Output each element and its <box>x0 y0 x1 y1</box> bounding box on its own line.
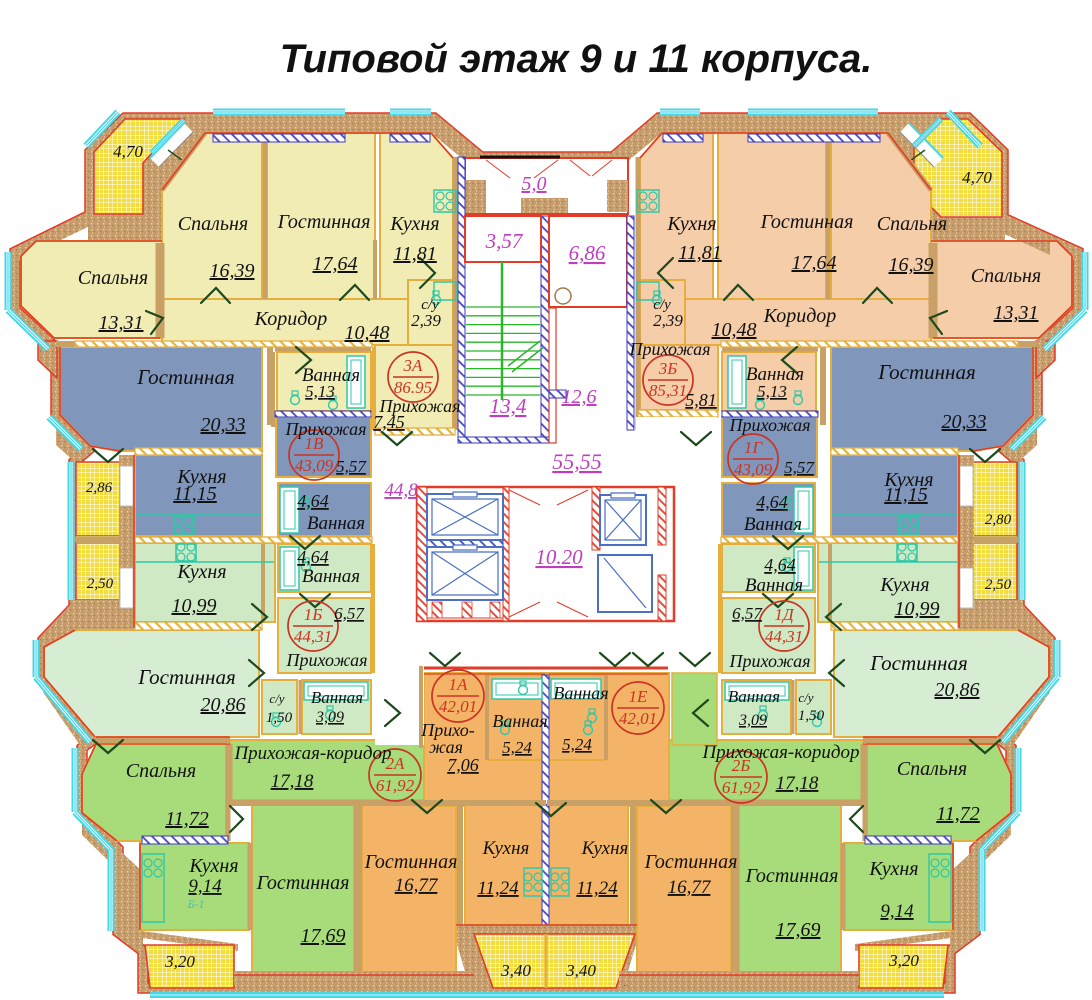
svg-text:Прихожая: Прихожая <box>729 415 811 435</box>
svg-text:3,57: 3,57 <box>485 229 524 253</box>
svg-text:17,64: 17,64 <box>792 252 837 274</box>
svg-text:6,57: 6,57 <box>334 604 365 623</box>
svg-text:Кухня: Кухня <box>176 561 226 583</box>
svg-text:44,31: 44,31 <box>765 627 803 646</box>
svg-text:11,15: 11,15 <box>884 484 928 506</box>
svg-text:с/у: с/у <box>269 691 284 706</box>
svg-text:6,57: 6,57 <box>732 604 763 623</box>
svg-text:20,33: 20,33 <box>942 411 987 433</box>
svg-text:1Д: 1Д <box>774 605 795 624</box>
svg-text:10,48: 10,48 <box>712 319 757 341</box>
svg-text:Гостинная: Гостинная <box>256 872 350 894</box>
svg-text:2,50: 2,50 <box>87 576 114 592</box>
svg-text:6,86: 6,86 <box>569 241 606 265</box>
svg-text:5,81: 5,81 <box>685 390 717 410</box>
svg-text:Кухня: Кухня <box>879 574 929 596</box>
svg-text:2,50: 2,50 <box>985 577 1012 593</box>
svg-text:Ванная: Ванная <box>492 711 547 731</box>
svg-text:42,01: 42,01 <box>439 697 477 716</box>
svg-text:10.20: 10.20 <box>535 545 583 569</box>
svg-text:Кухня: Кухня <box>581 838 629 859</box>
svg-text:1Б: 1Б <box>304 605 323 624</box>
svg-text:20,86: 20,86 <box>935 679 980 701</box>
svg-text:4,64: 4,64 <box>297 491 329 511</box>
svg-text:11,72: 11,72 <box>936 803 980 825</box>
svg-text:Ванная: Ванная <box>744 514 802 535</box>
svg-text:Кухня: Кухня <box>666 213 716 235</box>
svg-text:Ванная: Ванная <box>553 683 608 703</box>
svg-text:10,99: 10,99 <box>895 598 940 620</box>
svg-text:с/у: с/у <box>798 690 813 705</box>
svg-text:86.95: 86.95 <box>394 378 432 397</box>
svg-text:Гостинная: Гостинная <box>869 651 967 675</box>
svg-text:Спальня: Спальня <box>897 758 967 780</box>
svg-text:13,4: 13,4 <box>490 394 527 418</box>
svg-text:4,64: 4,64 <box>297 547 329 567</box>
svg-text:5,0: 5,0 <box>522 173 547 195</box>
svg-text:Кухня: Кухня <box>482 838 530 859</box>
svg-text:Прихожая: Прихожая <box>629 339 711 359</box>
svg-text:Ванная: Ванная <box>302 566 360 587</box>
svg-text:1,50: 1,50 <box>798 708 825 724</box>
svg-text:11,72: 11,72 <box>165 808 209 830</box>
svg-text:11,81: 11,81 <box>678 242 722 264</box>
svg-text:Гостинная: Гостинная <box>364 851 458 873</box>
svg-text:Ванная: Ванная <box>311 688 363 707</box>
svg-text:2,86: 2,86 <box>86 480 113 496</box>
svg-text:Спальня: Спальня <box>78 267 148 289</box>
svg-text:Гостинная: Гостинная <box>277 211 371 233</box>
svg-text:10,99: 10,99 <box>172 595 217 617</box>
svg-text:2,80: 2,80 <box>985 512 1012 528</box>
svg-text:5,13: 5,13 <box>757 382 787 401</box>
svg-text:16,77: 16,77 <box>668 877 712 898</box>
svg-text:Кухня: Кухня <box>389 213 439 235</box>
svg-text:3,40: 3,40 <box>500 961 531 980</box>
svg-text:4,70: 4,70 <box>962 168 992 187</box>
svg-text:Спальня: Спальня <box>971 265 1041 287</box>
svg-text:43,09: 43,09 <box>734 460 773 479</box>
svg-text:Спальня: Спальня <box>126 760 196 782</box>
svg-text:17,18: 17,18 <box>271 771 314 792</box>
svg-text:17,69: 17,69 <box>776 919 821 941</box>
svg-text:Спальня: Спальня <box>877 213 947 235</box>
svg-text:5,57: 5,57 <box>336 457 367 476</box>
svg-text:44,31: 44,31 <box>294 627 332 646</box>
svg-text:Кухня: Кухня <box>868 858 918 880</box>
svg-text:2,39: 2,39 <box>411 311 441 330</box>
svg-text:5,13: 5,13 <box>305 382 335 401</box>
svg-text:5,24: 5,24 <box>502 738 532 757</box>
svg-text:7,45: 7,45 <box>373 412 405 432</box>
svg-text:Гостинная: Гостинная <box>137 665 235 689</box>
svg-text:Типовой этаж 9 и 11 корпуса.: Типовой этаж 9 и 11 корпуса. <box>280 37 873 81</box>
svg-text:11,81: 11,81 <box>393 243 437 265</box>
svg-text:17,18: 17,18 <box>776 773 819 794</box>
svg-text:9,14: 9,14 <box>880 901 914 922</box>
svg-text:3,09: 3,09 <box>738 712 767 729</box>
svg-text:3,20: 3,20 <box>888 951 919 970</box>
svg-text:17,64: 17,64 <box>313 253 358 275</box>
svg-text:4,70: 4,70 <box>113 142 143 161</box>
svg-text:12,6: 12,6 <box>562 386 597 408</box>
svg-text:3,40: 3,40 <box>565 961 596 980</box>
svg-text:Ванная: Ванная <box>307 513 365 534</box>
svg-text:5,57: 5,57 <box>784 458 815 477</box>
svg-text:3,20: 3,20 <box>164 952 195 971</box>
svg-text:11,24: 11,24 <box>477 878 519 899</box>
svg-text:Гостинная: Гостинная <box>136 365 234 389</box>
svg-text:Прихожая-коридор: Прихожая-коридор <box>233 743 391 764</box>
svg-text:11,15: 11,15 <box>173 483 217 505</box>
svg-text:20,86: 20,86 <box>201 694 246 716</box>
svg-text:3,09: 3,09 <box>315 709 344 726</box>
svg-text:Ванная: Ванная <box>745 575 803 596</box>
svg-text:Гостинная: Гостинная <box>760 211 854 233</box>
svg-text:Прихожая: Прихожая <box>286 650 368 670</box>
svg-text:Коридор: Коридор <box>254 308 328 330</box>
svg-text:61,92: 61,92 <box>376 776 415 795</box>
svg-text:55,55: 55,55 <box>552 449 602 474</box>
svg-text:1А: 1А <box>449 675 469 694</box>
svg-text:1Г: 1Г <box>744 438 764 457</box>
svg-text:42,01: 42,01 <box>619 709 657 728</box>
svg-text:2,39: 2,39 <box>653 311 683 330</box>
svg-text:44,8: 44,8 <box>384 480 418 501</box>
svg-text:61,92: 61,92 <box>722 778 761 797</box>
svg-text:10,48: 10,48 <box>345 322 390 344</box>
svg-text:43,09: 43,09 <box>295 456 334 475</box>
svg-text:11,24: 11,24 <box>576 878 618 899</box>
svg-text:Прихожая-коридор: Прихожая-коридор <box>701 742 859 763</box>
svg-text:Кухня: Кухня <box>188 855 238 877</box>
svg-text:16,77: 16,77 <box>395 875 439 896</box>
svg-text:16,39: 16,39 <box>210 260 255 282</box>
svg-text:3А: 3А <box>403 356 424 375</box>
svg-text:Б-1: Б-1 <box>186 897 204 911</box>
svg-text:Гостинная: Гостинная <box>745 865 839 887</box>
svg-text:1,50: 1,50 <box>266 710 293 726</box>
svg-text:17,69: 17,69 <box>301 925 346 947</box>
svg-text:13,31: 13,31 <box>994 302 1039 324</box>
svg-text:3Б: 3Б <box>658 359 678 378</box>
svg-text:20,33: 20,33 <box>201 414 246 436</box>
svg-text:1Е: 1Е <box>629 687 649 706</box>
svg-text:Ванная: Ванная <box>728 687 780 706</box>
svg-text:Коридор: Коридор <box>763 305 837 327</box>
svg-text:жая: жая <box>429 737 463 757</box>
svg-text:Гостинная: Гостинная <box>644 851 738 873</box>
svg-text:16,39: 16,39 <box>889 254 934 276</box>
svg-text:Спальня: Спальня <box>178 213 248 235</box>
svg-text:13,31: 13,31 <box>99 312 144 334</box>
svg-text:4,64: 4,64 <box>764 555 796 575</box>
svg-text:Прихожая: Прихожая <box>729 651 811 671</box>
svg-text:7,06: 7,06 <box>447 755 479 775</box>
svg-text:Прихожая: Прихожая <box>285 419 367 439</box>
svg-text:85,31: 85,31 <box>649 381 687 400</box>
svg-text:4,64: 4,64 <box>756 492 788 512</box>
svg-text:5,24: 5,24 <box>562 735 592 754</box>
svg-text:Гостинная: Гостинная <box>877 360 975 384</box>
svg-text:9,14: 9,14 <box>188 876 222 897</box>
